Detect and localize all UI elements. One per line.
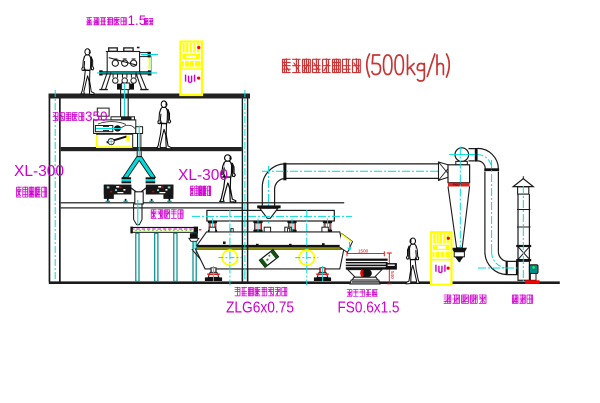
- svg-text:1.5: 1.5: [128, 13, 147, 28]
- svg-text:540: 540: [390, 271, 395, 279]
- svg-text:ZLG6x0.75: ZLG6x0.75: [226, 300, 294, 317]
- svg-text:350: 350: [85, 109, 108, 124]
- svg-text:XL-300: XL-300: [14, 163, 64, 180]
- svg-text:XL-300: XL-300: [178, 167, 228, 184]
- svg-text:1500: 1500: [358, 249, 369, 254]
- svg-text:FS0.6x1.5: FS0.6x1.5: [338, 300, 400, 317]
